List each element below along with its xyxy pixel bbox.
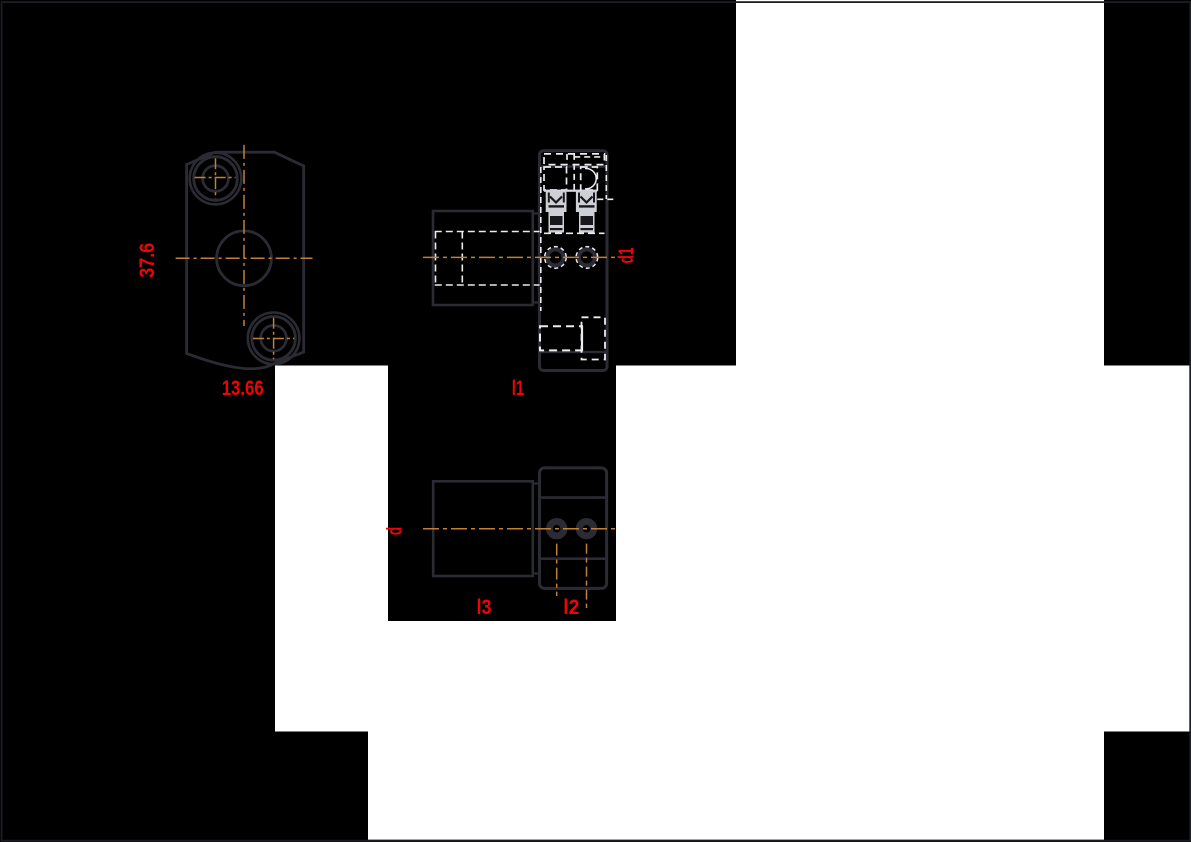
- svg-text:13.66: 13.66: [222, 377, 264, 400]
- svg-text:l2: l2: [563, 596, 579, 619]
- svg-text:l3: l3: [477, 596, 492, 619]
- svg-text:37.6: 37.6: [136, 243, 159, 278]
- svg-text:d1: d1: [615, 247, 638, 263]
- svg-text:d: d: [384, 527, 407, 536]
- svg-text:l1: l1: [512, 377, 525, 400]
